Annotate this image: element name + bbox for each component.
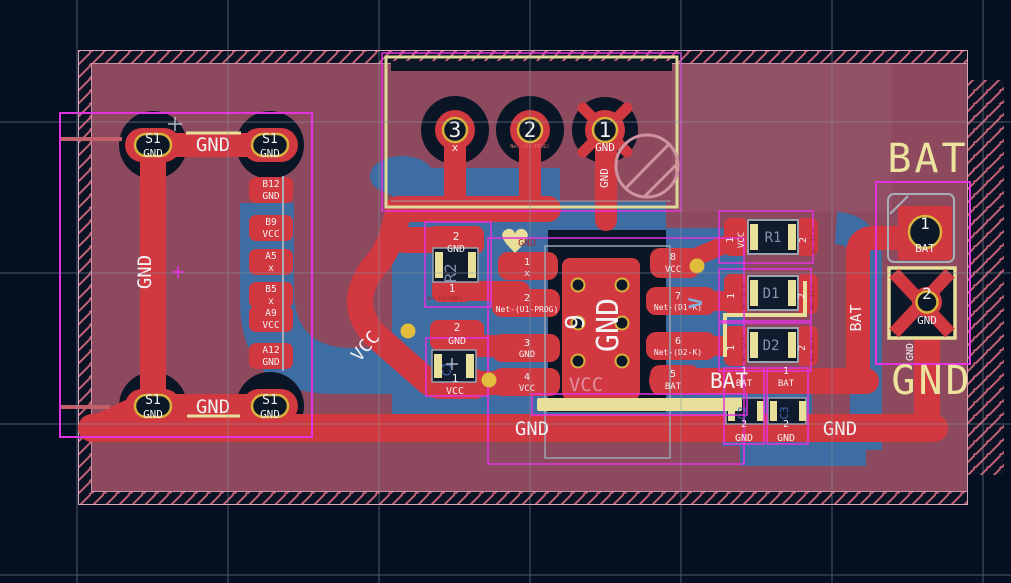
usb-connector-silk bbox=[537, 398, 742, 411]
svg-text:GND: GND bbox=[823, 418, 857, 440]
svg-text:B12: B12 bbox=[262, 179, 279, 190]
svg-text:BAT: BAT bbox=[847, 304, 865, 331]
svg-text:GND: GND bbox=[515, 418, 549, 440]
gnd-title: GND bbox=[891, 358, 972, 404]
board-edge-bottom bbox=[78, 492, 968, 505]
svg-text:V: V bbox=[685, 297, 707, 308]
svg-text:GND: GND bbox=[262, 191, 279, 202]
svg-text:B5: B5 bbox=[265, 284, 276, 295]
svg-text:1: 1 bbox=[920, 214, 930, 233]
svg-text:S1: S1 bbox=[262, 393, 278, 408]
svg-text:x: x bbox=[524, 269, 530, 279]
svg-text:GND: GND bbox=[735, 433, 753, 444]
svg-text:GND: GND bbox=[518, 238, 536, 249]
trace-label: GND bbox=[196, 134, 230, 156]
svg-text:GND: GND bbox=[134, 255, 156, 289]
svg-text:2: 2 bbox=[524, 293, 530, 304]
svg-text:VCC: VCC bbox=[519, 384, 535, 394]
svg-text:Net-(D1-A): Net-(D1-A) bbox=[810, 282, 816, 309]
via bbox=[482, 373, 497, 388]
svg-text:2: 2 bbox=[453, 230, 460, 243]
svg-text:BAT: BAT bbox=[778, 379, 795, 389]
svg-text:2: 2 bbox=[454, 321, 461, 334]
svg-text:A12: A12 bbox=[262, 345, 279, 356]
svg-text:VCC: VCC bbox=[446, 386, 464, 397]
via bbox=[401, 324, 416, 339]
svg-text:8: 8 bbox=[670, 252, 676, 263]
svg-text:A5: A5 bbox=[265, 251, 276, 262]
ic-silk-vcc: VCC bbox=[569, 374, 603, 396]
svg-text:GND: GND bbox=[591, 298, 626, 352]
svg-text:GND: GND bbox=[777, 433, 795, 444]
bat-title: BAT bbox=[887, 136, 968, 182]
svg-text:S1: S1 bbox=[145, 393, 161, 408]
svg-text:GND: GND bbox=[598, 168, 611, 188]
c3-refdes: C3 bbox=[778, 406, 791, 419]
svg-text:1: 1 bbox=[783, 366, 789, 377]
svg-text:BAT: BAT bbox=[665, 382, 682, 392]
svg-text:B9: B9 bbox=[265, 217, 277, 228]
svg-text:VCC: VCC bbox=[737, 232, 747, 248]
svg-text:Net-(D2-A): Net-(D2-A) bbox=[810, 334, 816, 361]
board-edge-right bbox=[968, 80, 1004, 475]
svg-text:Net-(D1-A): Net-(D1-A) bbox=[811, 226, 817, 253]
svg-text:GND: GND bbox=[196, 396, 230, 418]
d2-refdes: D2 bbox=[763, 338, 780, 354]
svg-text:GND: GND bbox=[260, 147, 280, 160]
svg-text:1: 1 bbox=[725, 237, 736, 243]
svg-text:9: 9 bbox=[561, 314, 591, 330]
svg-text:Net-(D2-K): Net-(D2-K) bbox=[741, 334, 747, 361]
svg-text:x: x bbox=[452, 141, 459, 154]
svg-text:GND: GND bbox=[447, 244, 465, 255]
svg-text:VCC: VCC bbox=[262, 229, 279, 240]
svg-text:GND: GND bbox=[595, 141, 615, 154]
svg-text:x: x bbox=[268, 263, 274, 274]
r1-refdes: R1 bbox=[765, 230, 782, 246]
svg-text:BAT: BAT bbox=[710, 369, 748, 393]
svg-text:GND: GND bbox=[519, 350, 535, 360]
svg-text:6: 6 bbox=[675, 336, 681, 347]
svg-text:BAT: BAT bbox=[915, 242, 935, 255]
svg-text:S1: S1 bbox=[262, 132, 278, 147]
via bbox=[690, 259, 705, 274]
svg-text:2: 2 bbox=[922, 284, 932, 303]
svg-text:5: 5 bbox=[670, 369, 676, 380]
svg-text:1: 1 bbox=[726, 293, 737, 299]
svg-text:1: 1 bbox=[449, 282, 456, 295]
svg-text:3: 3 bbox=[524, 338, 530, 349]
svg-text:A9: A9 bbox=[265, 308, 277, 319]
pad-net: GND bbox=[143, 147, 163, 160]
svg-text:x: x bbox=[268, 296, 274, 307]
c2-refdes: C2 bbox=[736, 406, 749, 419]
svg-text:GND: GND bbox=[917, 314, 937, 327]
svg-text:Net-(U1-PROG): Net-(U1-PROG) bbox=[496, 305, 559, 314]
d1-refdes: D1 bbox=[763, 286, 780, 302]
svg-text:Net-(D1-K): Net-(D1-K) bbox=[741, 282, 747, 309]
svg-text:GND: GND bbox=[262, 357, 279, 368]
svg-text:Net-[U1-PROG]: Net-[U1-PROG] bbox=[427, 296, 462, 302]
pad-ref: S1 bbox=[145, 132, 161, 147]
svg-text:Net-(D2-K): Net-(D2-K) bbox=[654, 348, 702, 357]
svg-text:VCC: VCC bbox=[262, 320, 279, 331]
svg-text:2: 2 bbox=[798, 237, 809, 243]
svg-text:1: 1 bbox=[726, 345, 737, 351]
svg-text:4: 4 bbox=[524, 372, 530, 383]
svg-text:GND: GND bbox=[260, 408, 280, 421]
svg-text:7: 7 bbox=[675, 291, 681, 302]
svg-text:GND: GND bbox=[143, 408, 163, 421]
pcb-editor-canvas: S1 GND S1 GND S1 GND S1 GND GND GND GND … bbox=[0, 0, 1011, 583]
svg-text:GND: GND bbox=[448, 336, 466, 347]
svg-text:1: 1 bbox=[524, 257, 530, 268]
svg-text:2: 2 bbox=[797, 293, 808, 299]
svg-text:2: 2 bbox=[797, 345, 808, 351]
